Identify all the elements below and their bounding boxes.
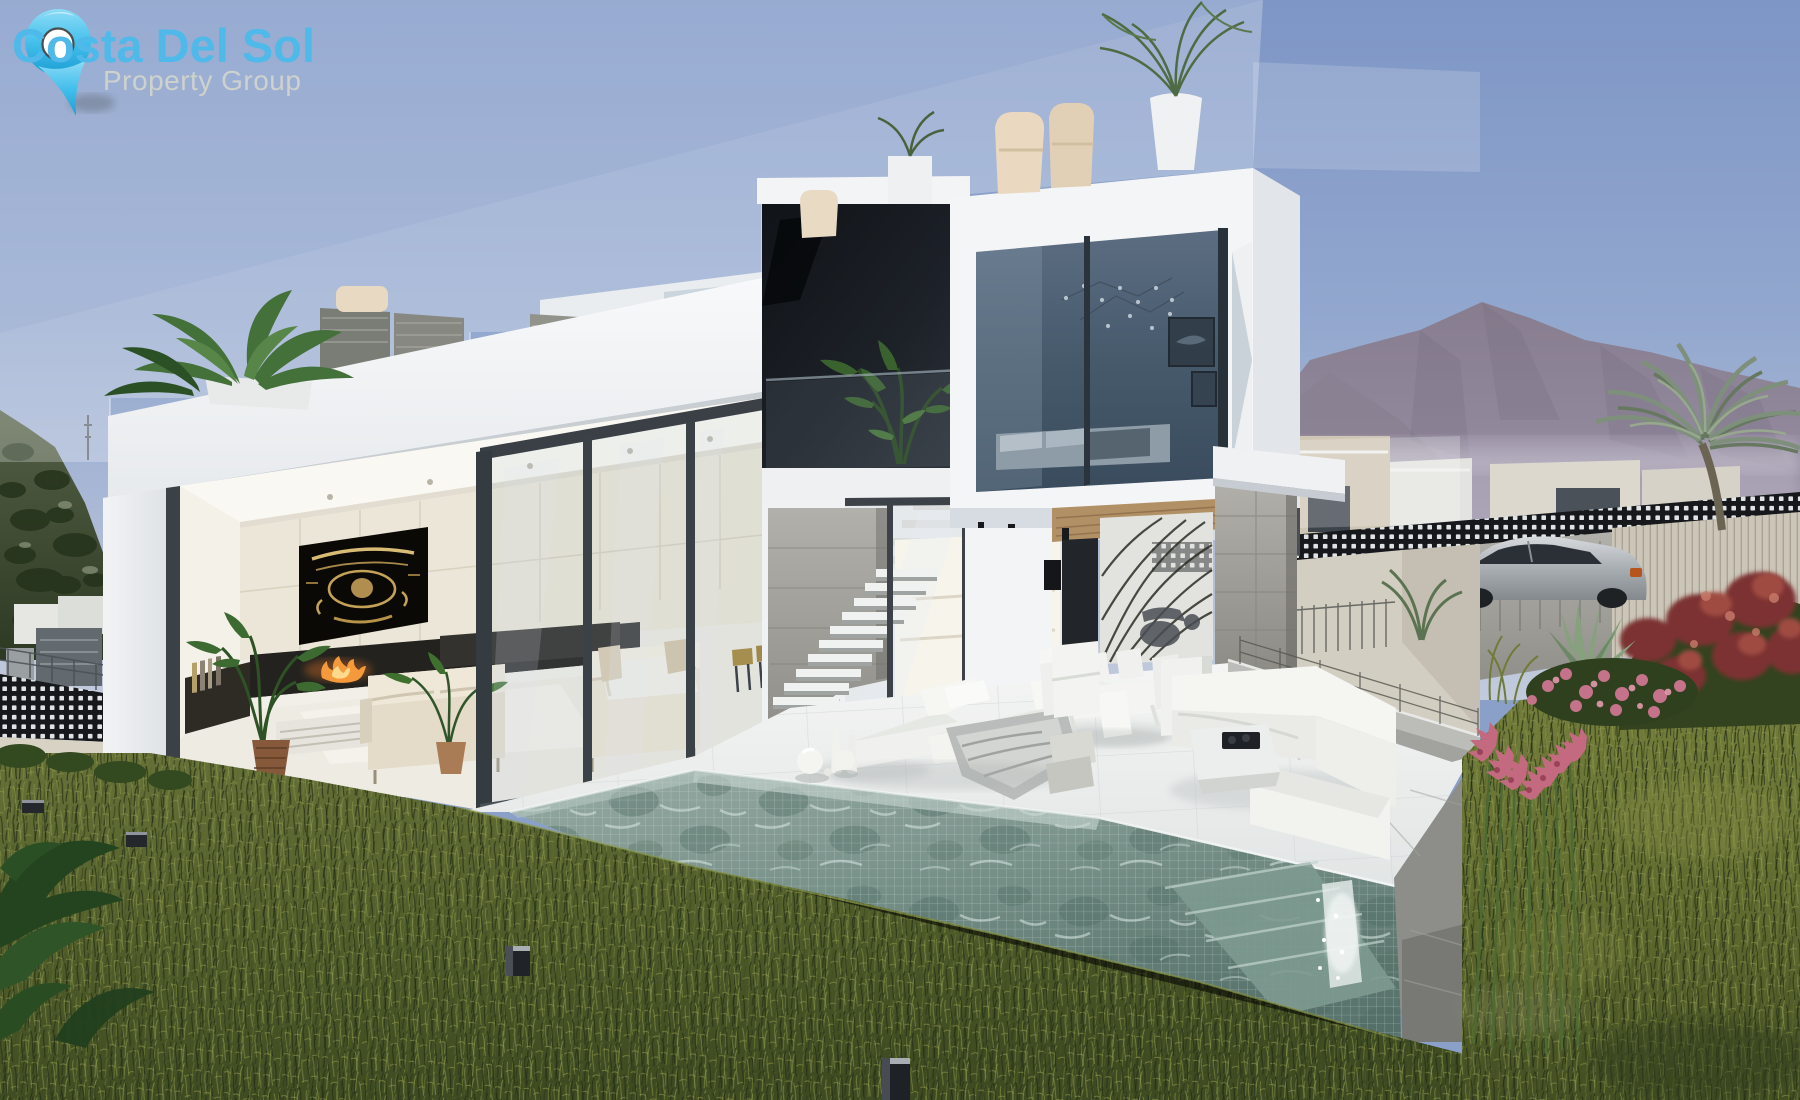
svg-text:Property Group: Property Group: [103, 65, 301, 96]
